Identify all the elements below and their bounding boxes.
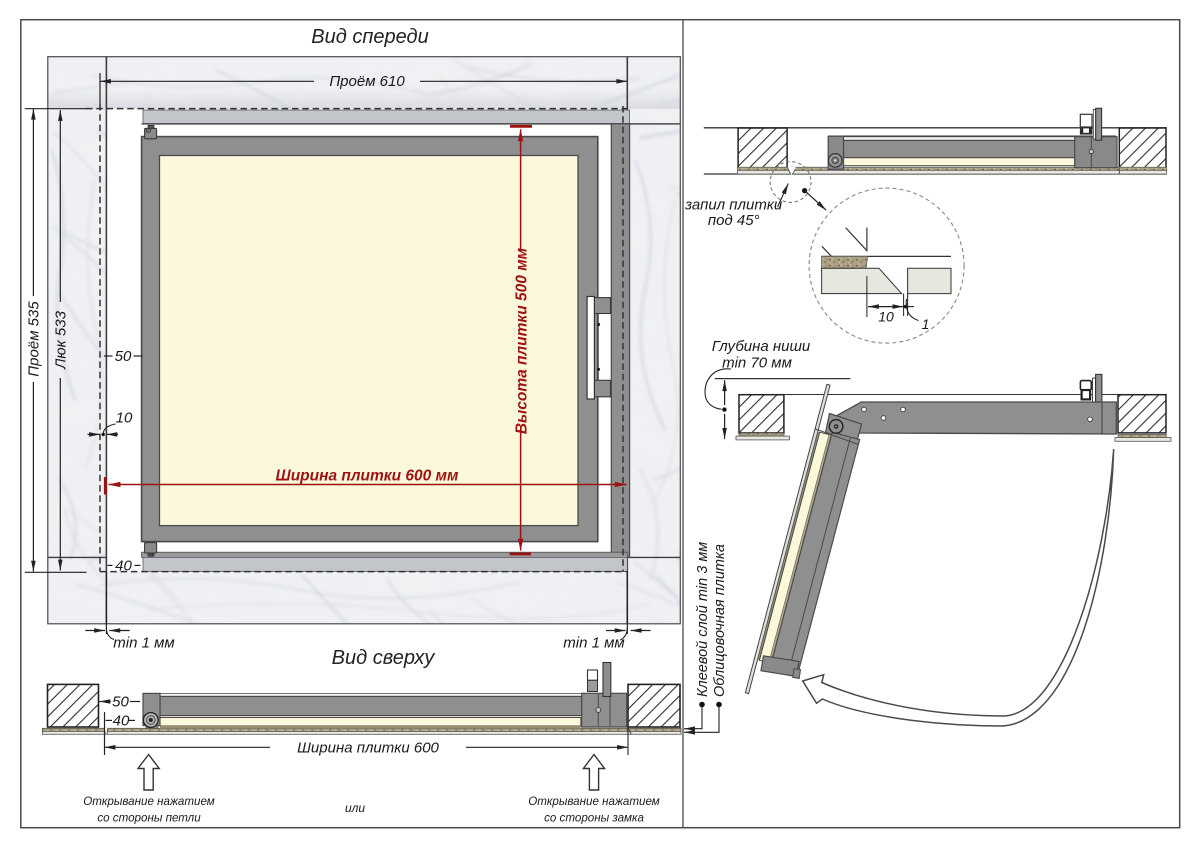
- svg-text:или: или: [345, 801, 365, 815]
- svg-text:Высота плитки 500 мм: Высота плитки 500 мм: [514, 247, 531, 434]
- svg-text:Проём 535: Проём 535: [26, 301, 43, 377]
- svg-text:Вид сверху: Вид сверху: [332, 647, 436, 669]
- svg-text:40: 40: [113, 712, 130, 729]
- svg-text:со стороны замка: со стороны замка: [544, 812, 644, 825]
- svg-text:min 70 мм: min 70 мм: [722, 355, 792, 372]
- svg-text:Открывание нажатием: Открывание нажатием: [528, 795, 660, 808]
- svg-text:под 45°: под 45°: [708, 212, 760, 229]
- svg-text:Глубина ниши: Глубина ниши: [712, 338, 811, 355]
- svg-text:min 1 мм: min 1 мм: [113, 635, 174, 652]
- svg-text:Облицовочная плитка: Облицовочная плитка: [712, 544, 728, 697]
- svg-text:Ширина плитки 600 мм: Ширина плитки 600 мм: [276, 468, 459, 485]
- svg-text:со стороны петли: со стороны петли: [97, 812, 201, 825]
- svg-text:Клеевой слой min 3 мм: Клеевой слой min 3 мм: [695, 542, 711, 697]
- svg-text:Вид спереди: Вид спереди: [311, 26, 428, 48]
- svg-text:Ширина плитки 600: Ширина плитки 600: [297, 739, 439, 756]
- svg-text:Люк 533: Люк 533: [53, 310, 70, 369]
- svg-text:1: 1: [922, 316, 930, 332]
- svg-text:40: 40: [115, 557, 132, 574]
- svg-text:Открывание нажатием: Открывание нажатием: [83, 795, 215, 808]
- svg-text:50: 50: [112, 694, 129, 711]
- svg-text:10: 10: [116, 410, 133, 427]
- svg-text:min 1 мм: min 1 мм: [563, 635, 624, 652]
- svg-text:Проём 610: Проём 610: [329, 73, 405, 90]
- svg-text:50: 50: [115, 348, 132, 365]
- svg-text:10: 10: [878, 309, 894, 325]
